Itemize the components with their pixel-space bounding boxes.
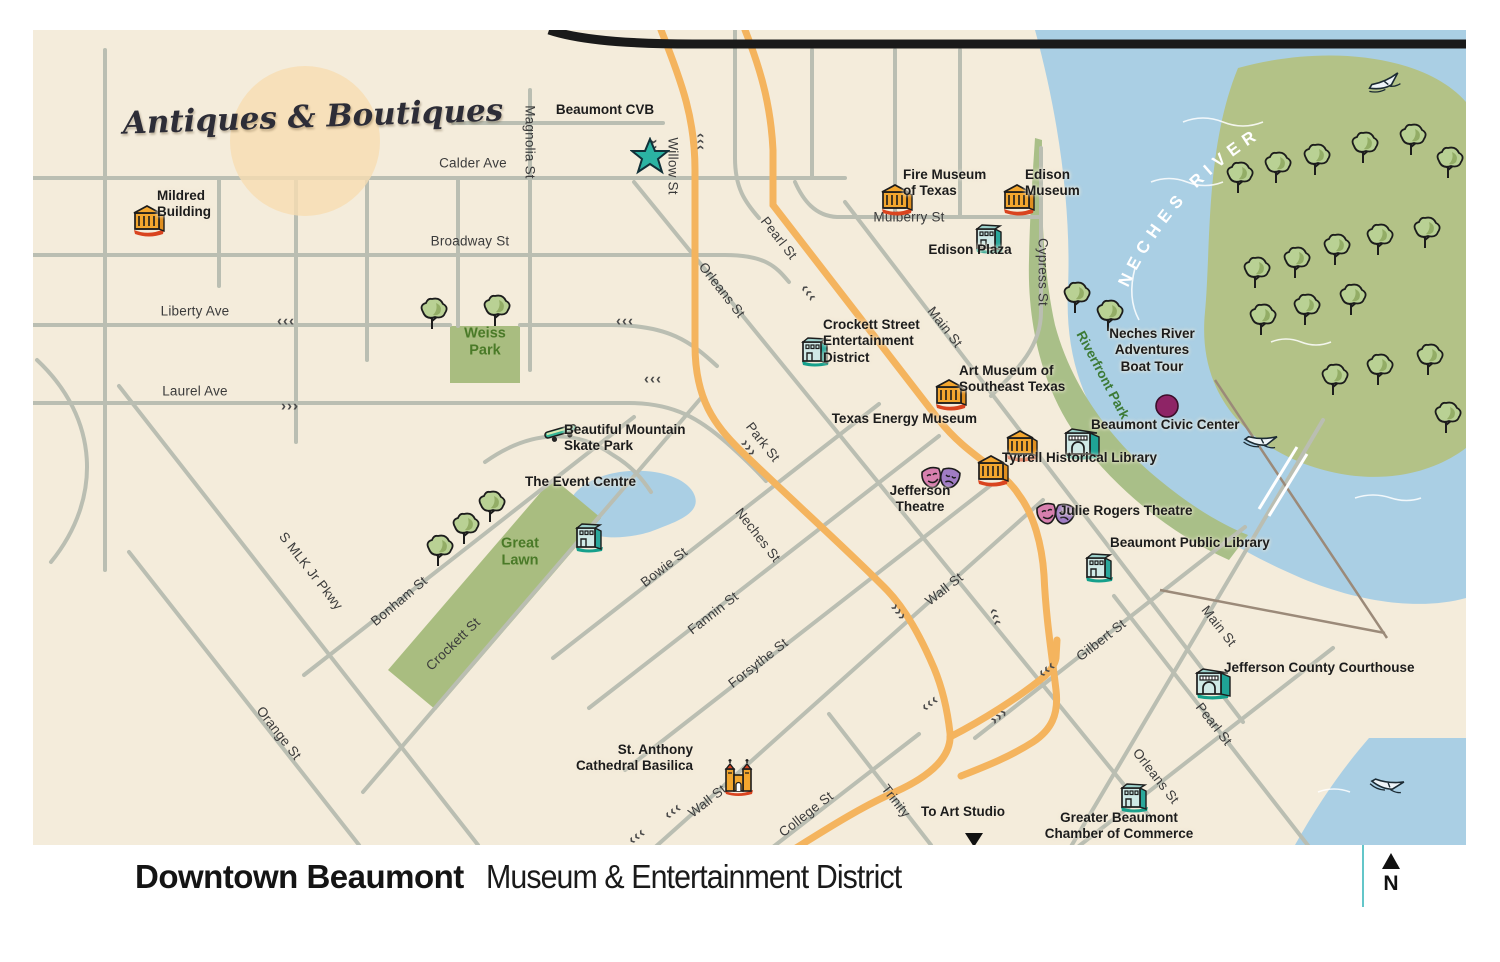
- north-indicator: N: [1362, 845, 1422, 909]
- street-label: Main St: [925, 304, 966, 350]
- julie-rogers-theatre-label: Julie Rogers Theatre: [1059, 503, 1193, 519]
- one-way-arrows: ‹‹‹: [693, 133, 710, 151]
- one-way-arrows: ‹‹‹: [797, 281, 821, 306]
- one-way-arrows: ›››: [281, 398, 299, 415]
- beaumont-public-library-label: Beaumont Public Library: [1110, 535, 1270, 551]
- jefferson-theatre-label: JeffersonTheatre: [890, 483, 951, 516]
- street-label: Trinity: [878, 782, 913, 821]
- street-label: Orange St: [254, 703, 305, 762]
- street-label: Orleans St: [696, 259, 748, 320]
- mildred-building-label: MildredBuilding: [157, 188, 211, 221]
- one-way-arrows: ‹‹‹: [1035, 657, 1060, 681]
- to-art-studio-label: To Art Studio: [921, 804, 1005, 820]
- jefferson-county-courthouse-label: Jefferson County Courthouse: [1224, 660, 1415, 676]
- street-label: Gilbert St: [1073, 616, 1128, 664]
- street-label: Magnolia St: [523, 105, 538, 179]
- north-divider-rule: [1362, 845, 1364, 907]
- art-museum-of-southeast-texas-label: Art Museum ofSoutheast Texas: [959, 363, 1065, 396]
- title-secondary: Museum & Entertainment District: [486, 858, 901, 896]
- one-way-arrows: ‹‹‹: [625, 824, 650, 845]
- one-way-arrows: ‹‹‹: [985, 606, 1007, 628]
- map-canvas-overlay: Magnolia StWillow StCalder AveBroadway S…: [33, 30, 1466, 845]
- street-label: Bonham St: [368, 573, 430, 629]
- greater-beaumont-chamber-of-commerce-label: Greater BeaumontChamber of Commerce: [1045, 810, 1194, 843]
- one-way-arrows: ‹‹‹: [277, 313, 295, 330]
- one-way-arrows: ‹‹‹: [918, 691, 943, 715]
- beautiful-mountain-skate-park-label: Beautiful MountainSkate Park: [564, 422, 686, 455]
- street-label: S MLK Jr Pkwy: [276, 529, 346, 612]
- crockett-street-entertainment-district-label: Crockett StreetEntertainmentDistrict: [823, 317, 920, 366]
- street-label: Crockett St: [423, 615, 483, 674]
- map-title: Downtown Beaumont Museum & Entertainment…: [135, 858, 937, 896]
- page: NECHES RIVER 10 90 Antiques & Boutiques …: [0, 0, 1500, 962]
- weiss-park-label: WeissPark: [464, 325, 506, 358]
- title-primary: Downtown Beaumont: [135, 858, 464, 896]
- one-way-arrows: ›››: [887, 600, 911, 625]
- map-canvas: NECHES RIVER 10 90 Antiques & Boutiques …: [33, 30, 1466, 845]
- north-arrow-icon: [1382, 853, 1400, 869]
- street-label: Wall St: [922, 570, 966, 609]
- st-anthony-cathedral-basilica-label: St. AnthonyCathedral Basilica: [576, 742, 693, 775]
- street-label: Broadway St: [431, 234, 510, 249]
- street-label: Bowie St: [638, 544, 690, 590]
- street-label: Fannin St: [685, 589, 741, 638]
- street-label: Pearl St: [758, 214, 800, 262]
- one-way-arrows: ›››: [987, 704, 1012, 728]
- one-way-arrows: ‹‹‹: [644, 371, 662, 388]
- tyrrell-historical-library-label: Tyrrell Historical Library: [1002, 450, 1157, 466]
- one-way-arrows: ‹‹‹: [661, 799, 686, 823]
- texas-energy-museum-label: Texas Energy Museum: [832, 411, 977, 427]
- street-label: Pearl St: [1193, 700, 1235, 748]
- great-lawn-label: GreatLawn: [501, 535, 539, 568]
- neches-river-adventures-boat-tour-label: Neches RiverAdventuresBoat Tour: [1109, 326, 1195, 375]
- the-event-centre-label: The Event Centre: [525, 474, 636, 490]
- street-label: Main St: [1199, 603, 1240, 649]
- one-way-arrows: ‹‹‹: [616, 313, 634, 330]
- beaumont-cvb-label: Beaumont CVB: [556, 102, 654, 118]
- fire-museum-of-texas-label: Fire Museumof Texas: [903, 167, 986, 200]
- north-label: N: [1382, 872, 1400, 896]
- street-label: Liberty Ave: [161, 304, 230, 319]
- street-label: Neches St: [732, 505, 783, 565]
- edison-plaza-label: Edison Plaza: [928, 242, 1011, 258]
- street-label: Calder Ave: [439, 156, 507, 171]
- street-label: Cypress St: [1036, 238, 1051, 306]
- street-label: Forsythe St: [725, 635, 790, 691]
- edison-museum-label: EdisonMuseum: [1025, 167, 1080, 200]
- street-label: College St: [776, 788, 836, 839]
- street-label: Laurel Ave: [162, 384, 228, 399]
